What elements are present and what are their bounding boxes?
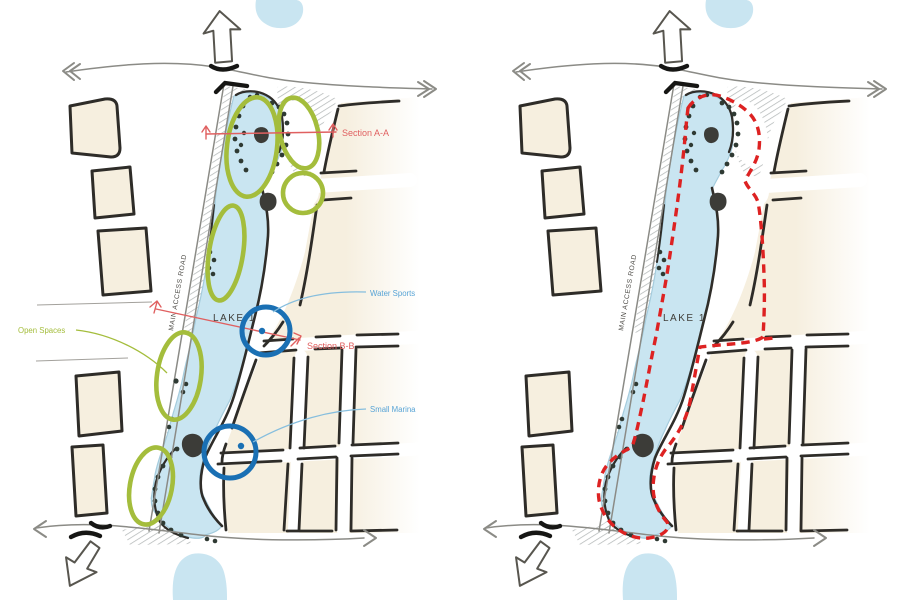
panel-open-spaces-plan: Section A-A Section B-B Open Spaces Wate… bbox=[18, 0, 436, 600]
open-spaces-annotation: Open Spaces bbox=[18, 326, 167, 373]
small-marina-label: Small Marina bbox=[370, 405, 416, 414]
section-bb-label: Section B-B bbox=[307, 341, 355, 351]
panel-promenade-plan bbox=[484, 0, 886, 600]
open-spaces-label: Open Spaces bbox=[18, 326, 65, 335]
water-sports-label: Water Sports bbox=[370, 289, 415, 298]
masterplan-sketch: LAKE 1 MAIN ACCESS ROAD Section A-A bbox=[0, 0, 900, 600]
section-aa-label: Section A-A bbox=[342, 128, 389, 138]
